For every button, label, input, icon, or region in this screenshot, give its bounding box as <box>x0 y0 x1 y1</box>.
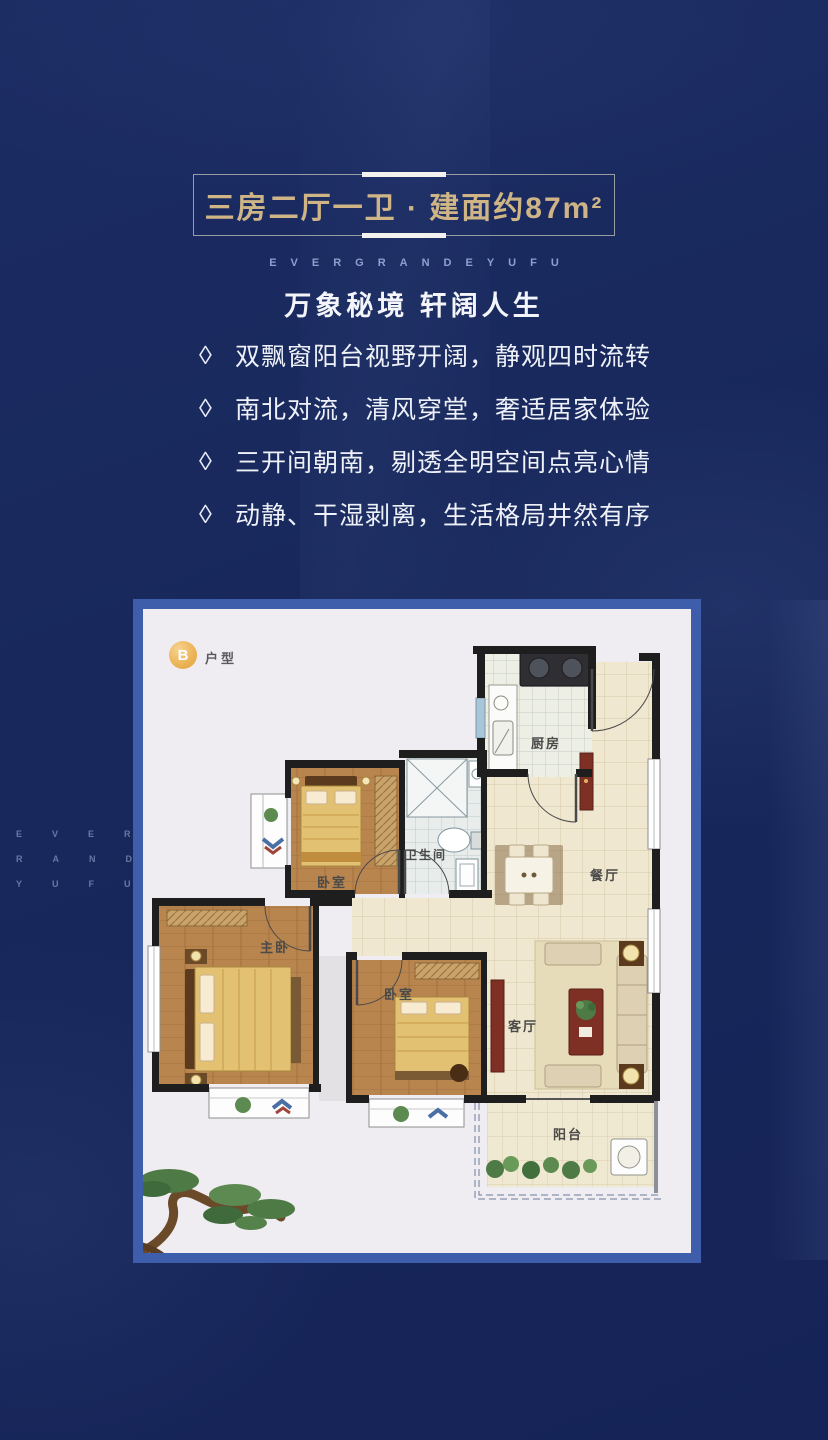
balcony-wall <box>654 1101 658 1193</box>
sofa-icon <box>617 955 647 1073</box>
room-label-living: 客厅 <box>508 1019 538 1034</box>
feature-item: ◊ 三开间朝南，剔透全明空间点亮心情 <box>199 445 669 477</box>
feature-text: 三开间朝南，剔透全明空间点亮心情 <box>235 443 651 479</box>
diamond-bullet-icon: ◊ <box>199 499 235 529</box>
tv-console-icon <box>491 980 504 1072</box>
frame-accent-bottom <box>362 233 446 238</box>
floorplan-card: 厨房 卫生间 <box>133 599 701 1263</box>
unit-badge-label: 户型 <box>205 648 237 667</box>
dining-table-icon <box>505 857 553 893</box>
floorplan-image: 厨房 卫生间 <box>143 609 691 1253</box>
plant-icon <box>235 1097 251 1113</box>
diamond-bullet-icon: ◊ <box>199 340 235 370</box>
headline-frame: 三房二厅一卫 · 建面约87m² <box>193 174 615 236</box>
lamp-icon <box>292 777 300 785</box>
structural-shaft <box>319 956 346 1101</box>
bay-window <box>209 1088 309 1118</box>
room-label-balcony: 阳台 <box>553 1127 583 1142</box>
room-label-bathroom: 卫生间 <box>405 847 447 862</box>
slogan: 万象秘境 轩阔人生 <box>0 284 828 323</box>
room-kitchen: 厨房 <box>477 650 592 777</box>
feature-item: ◊ 南北对流，清风穿堂，奢适居家体验 <box>199 392 669 424</box>
frame-accent-top <box>362 172 446 177</box>
room-bedroom-mid: 卧室 <box>352 960 481 1095</box>
bay-window <box>369 1099 464 1127</box>
window <box>476 698 485 738</box>
room-master-bedroom: 主卧 <box>159 906 313 1088</box>
sofa-seat <box>545 943 601 965</box>
plant-icon <box>393 1106 409 1122</box>
unit-badge: B <box>169 641 197 669</box>
lamp-icon <box>191 1075 201 1085</box>
coffee-table-icon <box>569 989 603 1055</box>
room-label-master: 主卧 <box>260 940 290 955</box>
background-edge-glow <box>768 600 828 1260</box>
page-title: 三房二厅一卫 · 建面约87m² <box>205 183 604 227</box>
pine-tree-illustration <box>143 1169 295 1253</box>
lamp-icon <box>362 777 370 785</box>
plant-icon <box>486 1160 504 1178</box>
sofa-seat <box>545 1065 601 1087</box>
diamond-bullet-icon: ◊ <box>199 446 235 476</box>
room-balcony: 阳台 <box>475 1101 664 1199</box>
feature-text: 双飘窗阳台视野开阔，静观四时流转 <box>235 337 651 373</box>
room-label-kitchen: 厨房 <box>531 736 561 751</box>
plant-icon <box>264 808 278 822</box>
lamp-icon <box>191 951 201 961</box>
bed-bench <box>291 977 301 1063</box>
kitchen-sink-icon <box>493 721 513 755</box>
feature-item: ◊ 双飘窗阳台视野开阔，静观四时流转 <box>199 339 669 371</box>
room-bedroom-top: 卧室 <box>291 768 399 894</box>
feature-text: 动静、干湿剥离，生活格局井然有序 <box>235 496 651 532</box>
room-bathroom: 卫生间 <box>405 754 487 894</box>
armchair <box>450 1064 468 1082</box>
diamond-bullet-icon: ◊ <box>199 393 235 423</box>
feature-item: ◊ 动静、干湿剥离，生活格局井然有序 <box>199 498 669 530</box>
promo-page: { "header": { "title": "三房二厅一卫 · 建面约87m²… <box>0 0 828 1440</box>
room-label-dining: 餐厅 <box>589 868 620 883</box>
feature-text: 南北对流，清风穿堂，奢适居家体验 <box>235 390 651 426</box>
bay-window <box>251 794 287 868</box>
room-label-bedroom-top: 卧室 <box>317 875 347 890</box>
room-label-bedroom-mid: 卧室 <box>384 987 414 1002</box>
brand-lettermark: EVERGRANDEYUFU <box>0 257 828 269</box>
feature-list: ◊ 双飘窗阳台视野开阔，静观四时流转 ◊ 南北对流，清风穿堂，奢适居家体验 ◊ … <box>199 339 669 551</box>
